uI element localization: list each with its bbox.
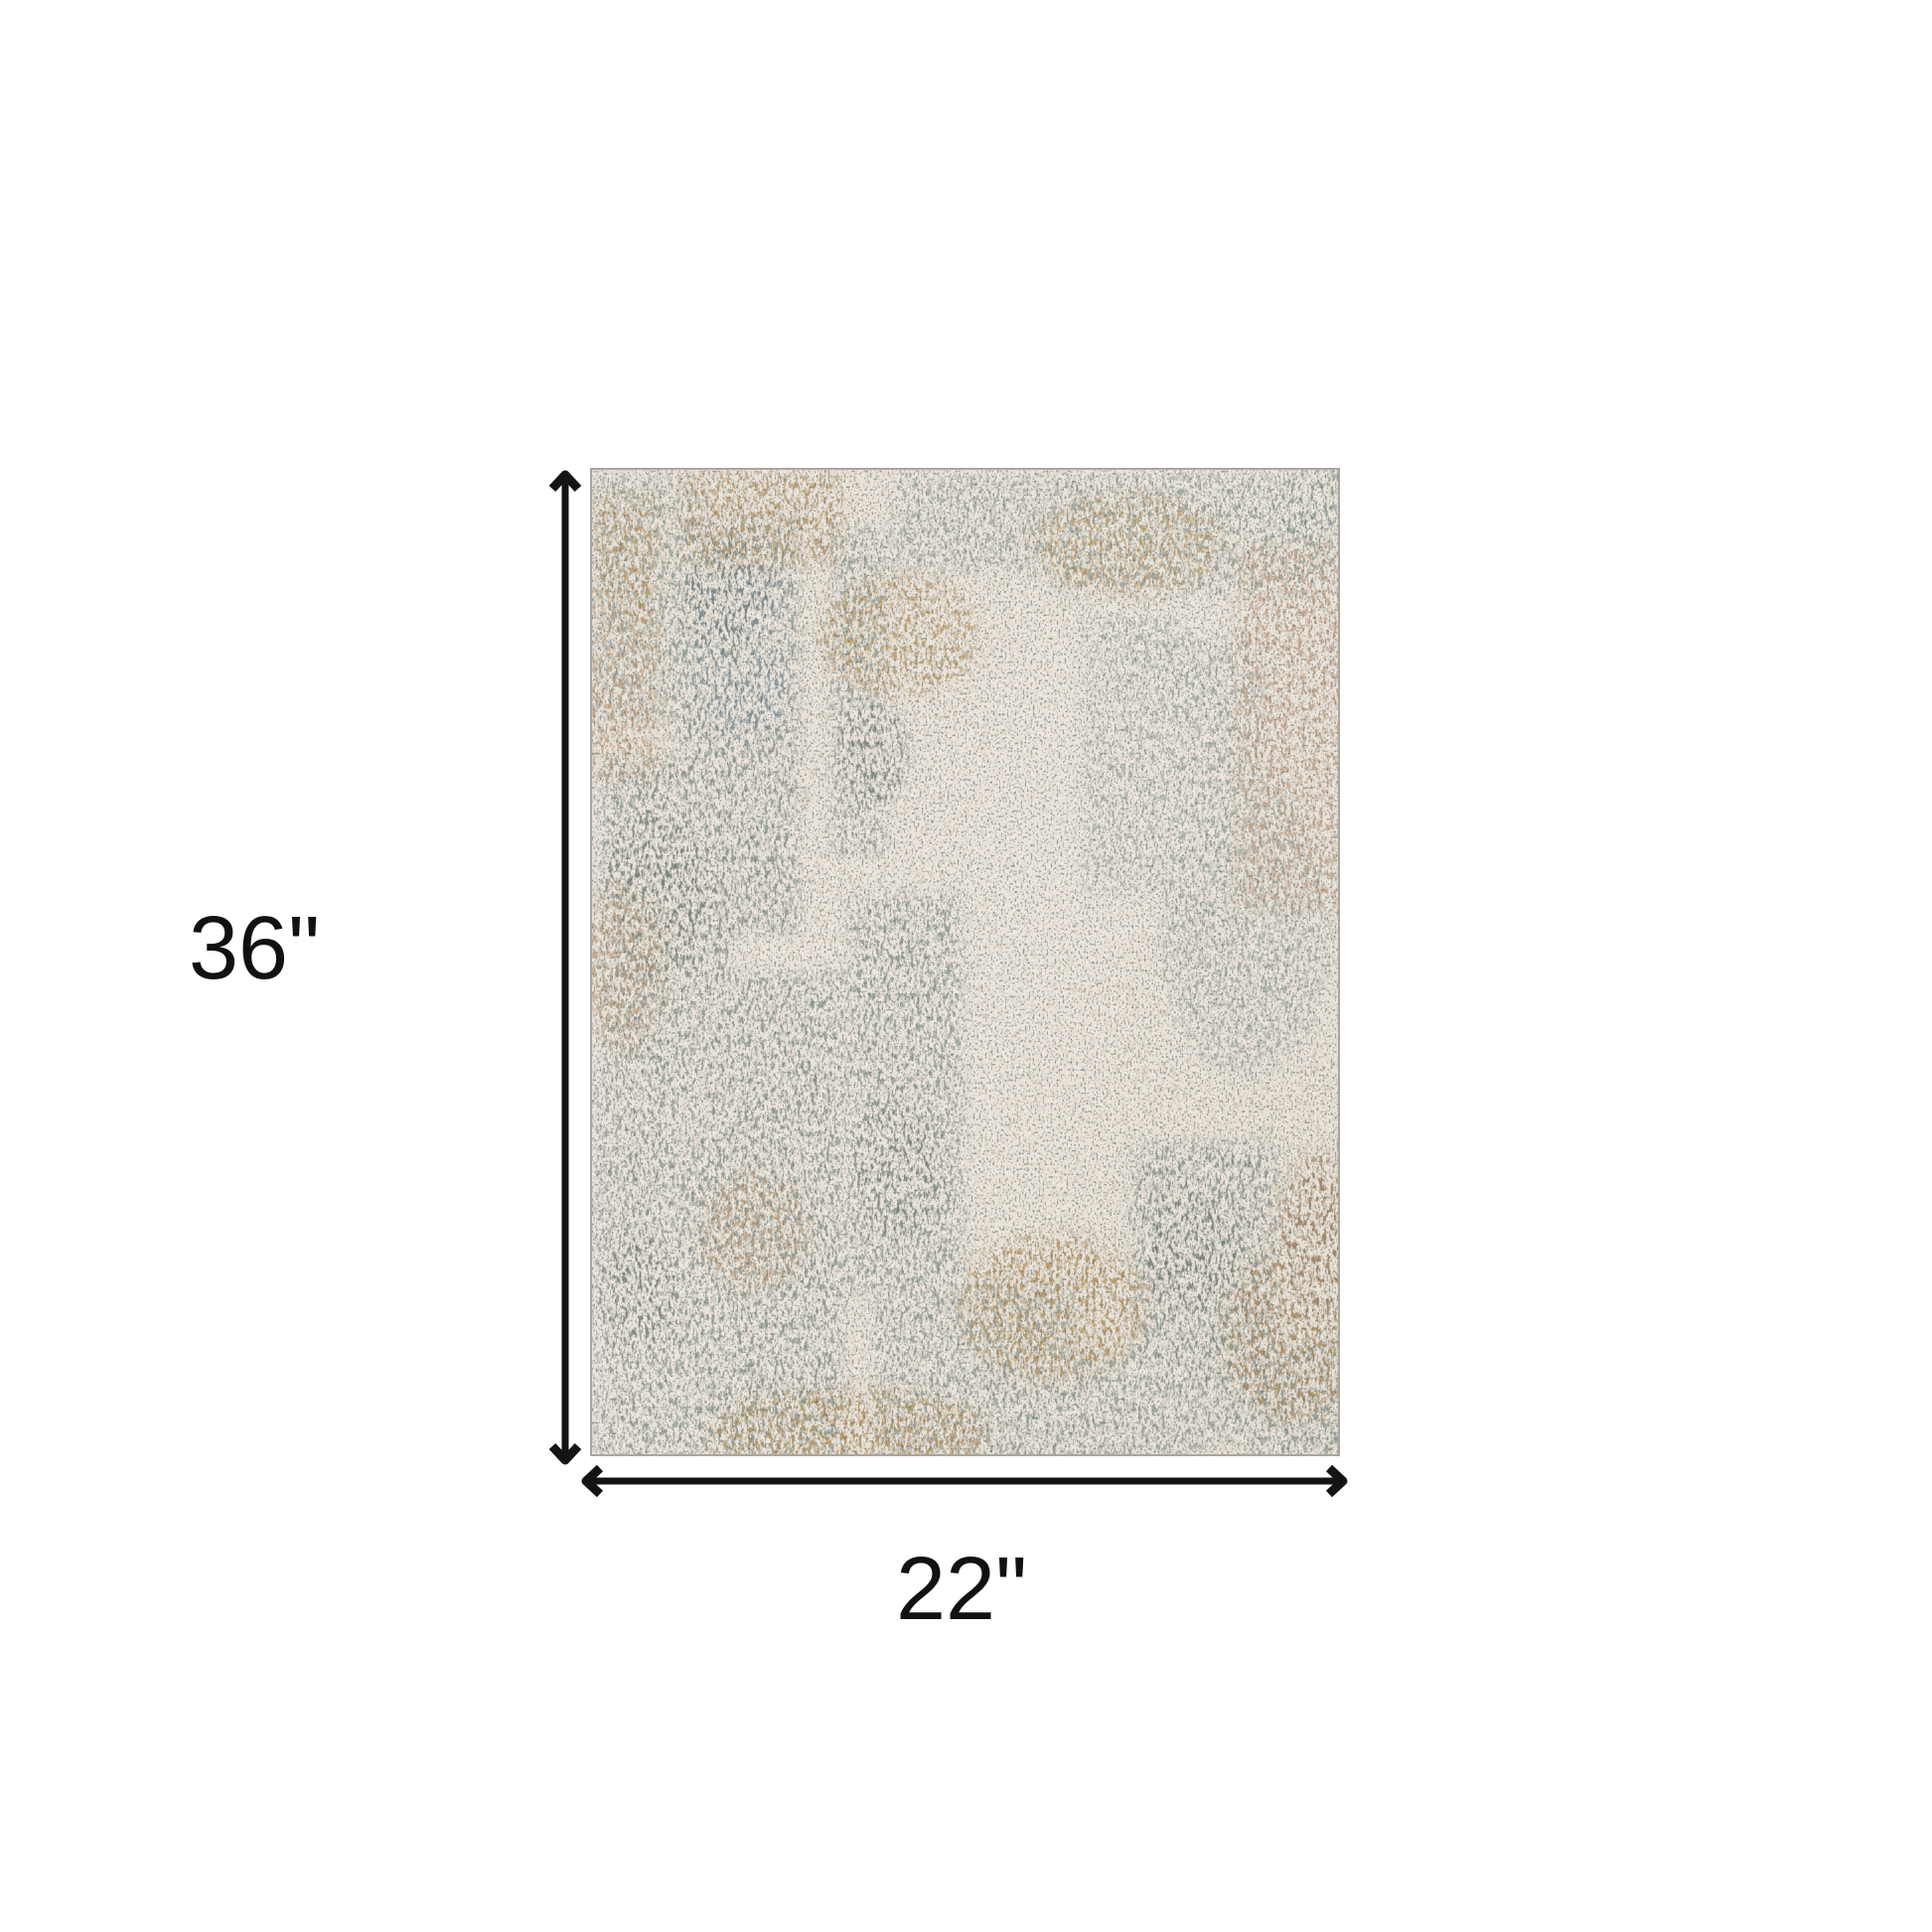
svg-text:22": 22" (896, 1540, 1027, 1639)
svg-text:36": 36" (189, 899, 320, 998)
